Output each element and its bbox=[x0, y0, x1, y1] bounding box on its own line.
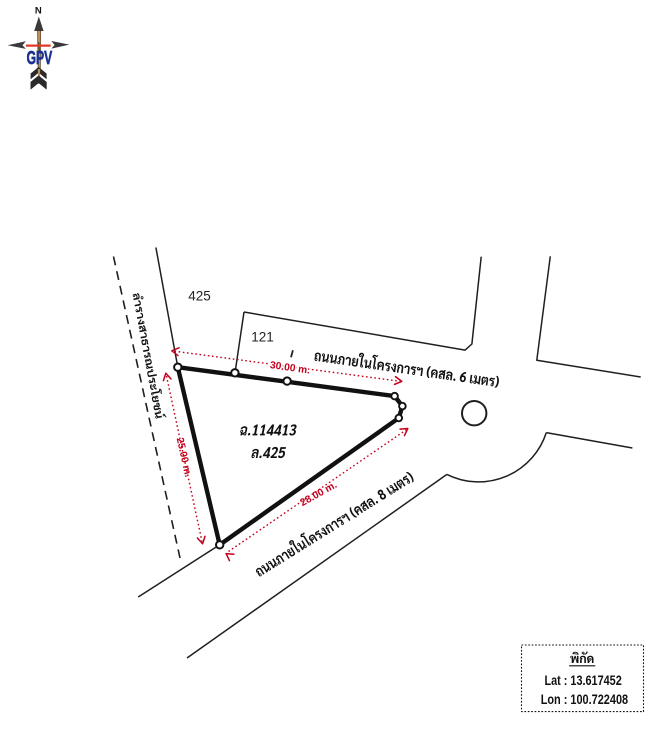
svg-text:Lat : 13.617452: Lat : 13.617452 bbox=[544, 673, 621, 688]
svg-text:425: 425 bbox=[188, 288, 211, 303]
svg-text:N: N bbox=[35, 5, 42, 16]
svg-text:Lon : 100.722408: Lon : 100.722408 bbox=[541, 692, 629, 707]
svg-text:121: 121 bbox=[251, 330, 274, 345]
svg-text:GPV: GPV bbox=[27, 48, 53, 68]
